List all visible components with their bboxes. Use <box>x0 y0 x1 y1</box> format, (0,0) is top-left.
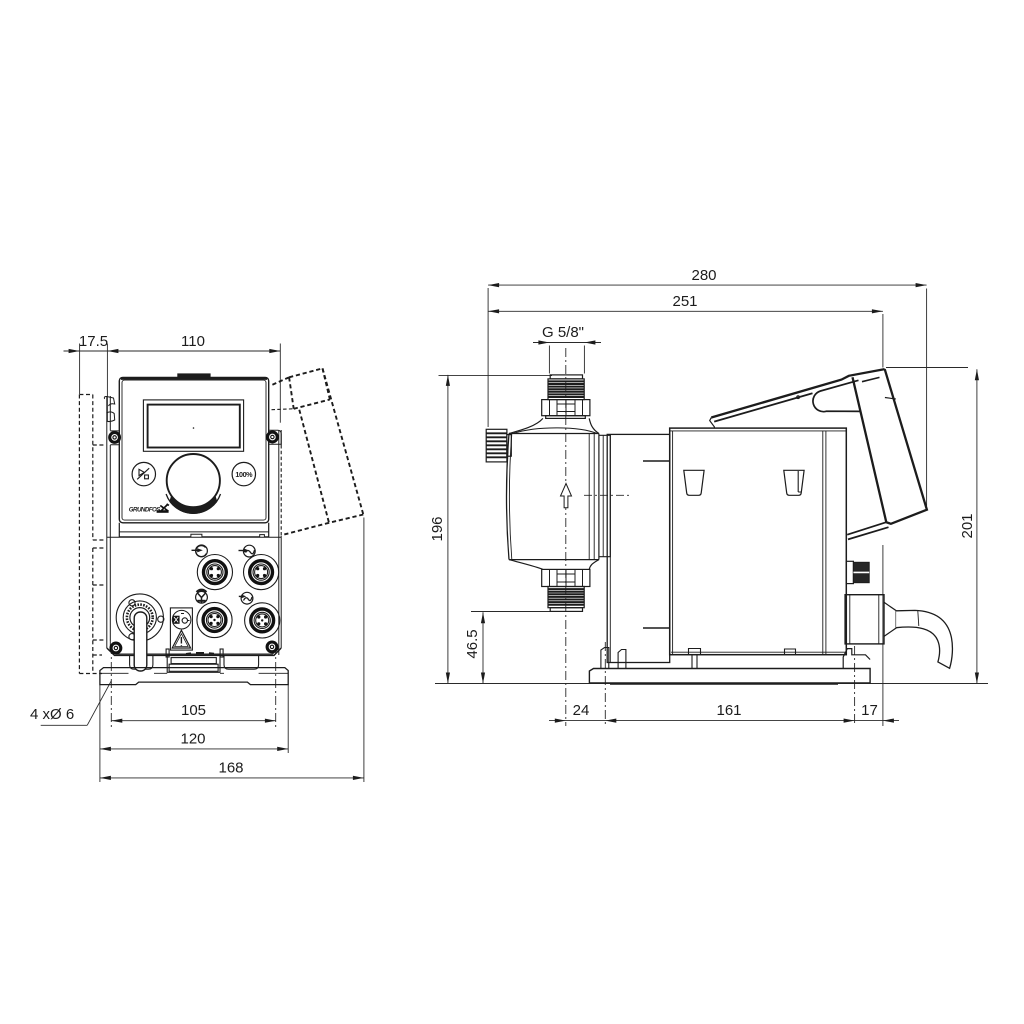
svg-text:GRUNDFOS: GRUNDFOS <box>129 506 161 513</box>
svg-text:196: 196 <box>429 516 446 541</box>
svg-text:105: 105 <box>181 702 206 719</box>
svg-text:120: 120 <box>180 731 205 748</box>
svg-text:161: 161 <box>716 702 741 719</box>
svg-text:201: 201 <box>959 513 976 538</box>
svg-text:17: 17 <box>861 702 878 719</box>
svg-text:280: 280 <box>691 267 716 284</box>
svg-text:G 5/8": G 5/8" <box>542 324 584 341</box>
svg-text:168: 168 <box>218 760 243 777</box>
svg-text:4 xØ 6: 4 xØ 6 <box>30 706 74 723</box>
svg-text:24: 24 <box>573 702 590 719</box>
svg-text:17.5: 17.5 <box>79 333 108 350</box>
svg-text:110: 110 <box>181 333 205 350</box>
svg-text:100%: 100% <box>235 470 253 479</box>
svg-text:46.5: 46.5 <box>464 629 481 658</box>
svg-text:251: 251 <box>672 293 697 310</box>
